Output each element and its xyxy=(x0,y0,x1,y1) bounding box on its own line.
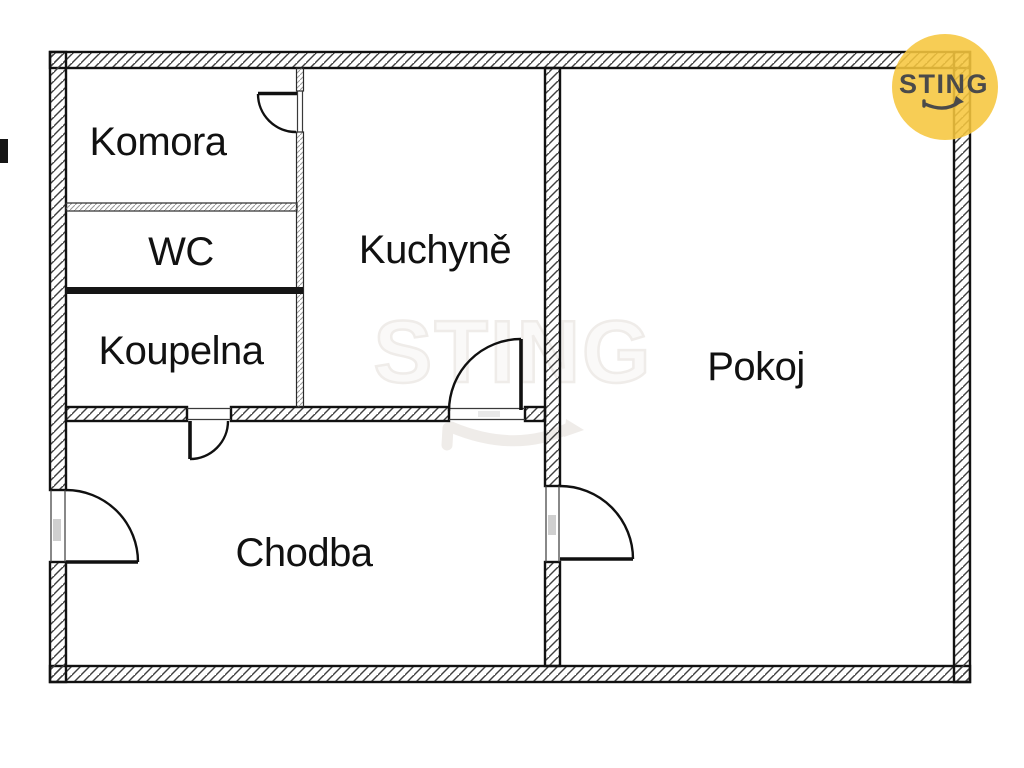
wall-top xyxy=(50,52,970,68)
wall-mid-horizontal-a xyxy=(66,407,187,421)
room-label-wc: WC xyxy=(148,230,214,274)
wall-mid-vertical-lower xyxy=(545,562,560,666)
watermark-text: STING xyxy=(374,302,653,401)
room-label-chodba: Chodba xyxy=(235,531,373,575)
wall-mid-horizontal-c xyxy=(525,407,545,421)
opening-entrance-tick xyxy=(53,519,61,541)
room-label-pokoj: Pokoj xyxy=(707,345,805,389)
wall-bottom xyxy=(50,666,970,682)
wall-mid-vertical-upper xyxy=(545,68,560,486)
wall-stub-left-edge xyxy=(0,139,8,163)
room-label-koupelna: Koupelna xyxy=(98,329,264,373)
floor-plan-page: STING xyxy=(0,0,1024,768)
floor-plan: STING xyxy=(0,0,1024,768)
wall-right xyxy=(954,52,970,682)
wall-left-upper xyxy=(50,52,66,490)
partition-komora-kuchyne-upper xyxy=(297,68,304,91)
partition-wc-koupelna xyxy=(66,287,303,294)
partition-komora-wc xyxy=(66,203,297,211)
opening-kuchyne-tick xyxy=(478,411,500,417)
room-label-kuchyne: Kuchyně xyxy=(359,228,511,272)
brand-logo-text: STING xyxy=(899,69,989,99)
partition-kuchyne-left xyxy=(297,132,304,407)
wall-mid-horizontal-b xyxy=(231,407,449,421)
wall-left-lower xyxy=(50,562,66,682)
brand-logo: STING xyxy=(892,34,998,140)
opening-pokoj-tick xyxy=(548,515,556,535)
room-label-komora: Komora xyxy=(89,120,227,164)
